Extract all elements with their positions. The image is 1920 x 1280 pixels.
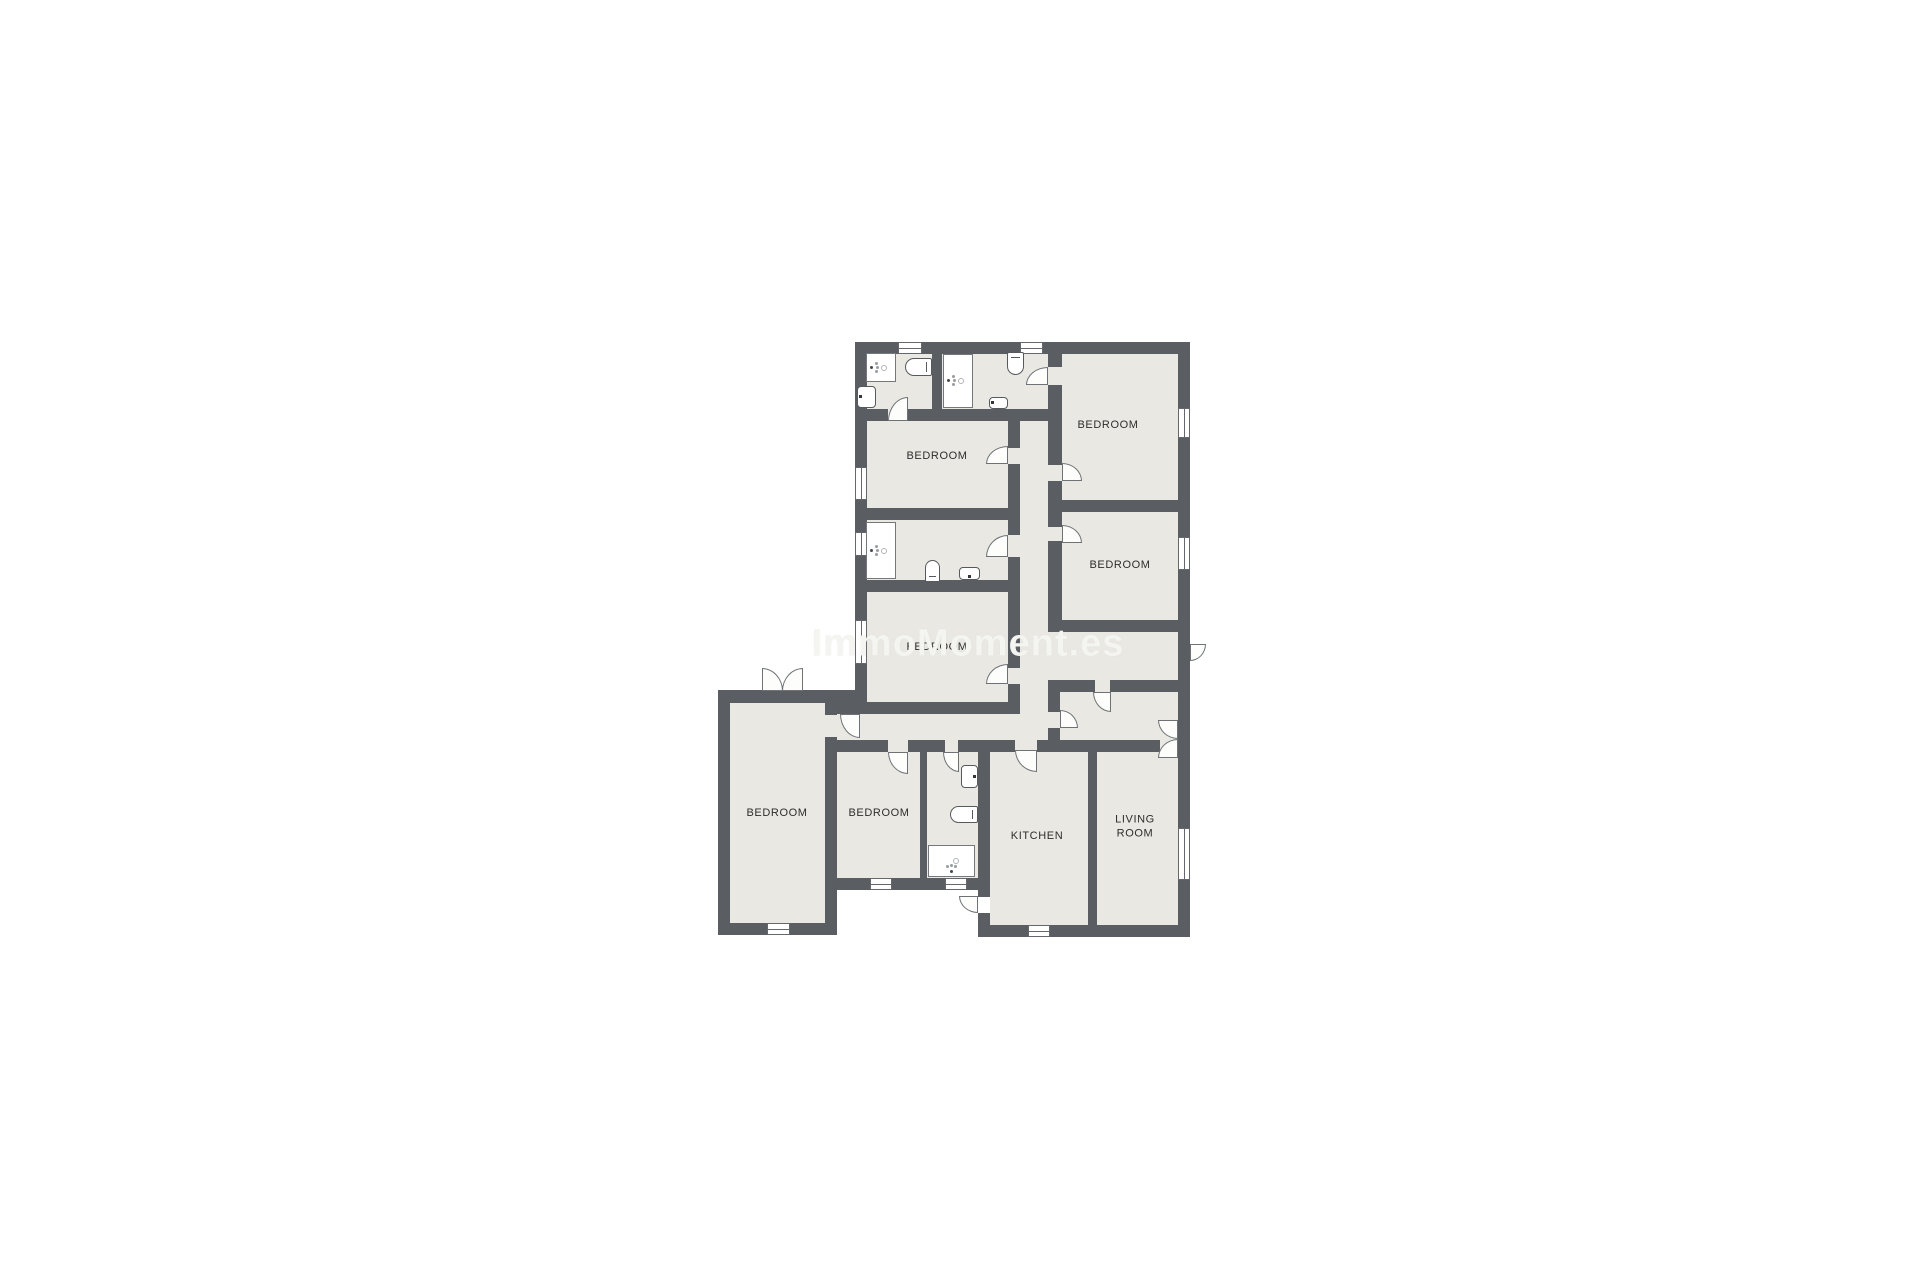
- wall: [978, 925, 1190, 937]
- wall: [837, 740, 888, 752]
- shower-head-icon: [947, 379, 950, 382]
- wall: [1008, 464, 1020, 535]
- door-gap: [1048, 367, 1062, 385]
- room-label: BEDROOM: [1077, 418, 1138, 432]
- french-door-west-right: [782, 668, 803, 691]
- window: [1028, 925, 1050, 937]
- wall: [990, 740, 1015, 752]
- wall: [1062, 500, 1178, 512]
- sink: [959, 567, 980, 580]
- french-door-west-left: [762, 668, 783, 691]
- door-gap: [1008, 668, 1020, 684]
- room-label: BEDROOM: [848, 806, 909, 820]
- wall: [855, 508, 1020, 520]
- wall: [908, 740, 945, 752]
- wall: [978, 913, 990, 937]
- window: [898, 342, 922, 354]
- wall: [1088, 750, 1097, 925]
- room-label: BEDROOM: [746, 806, 807, 820]
- wall: [908, 409, 1062, 421]
- shower-head-icon: [870, 549, 873, 552]
- window: [945, 878, 967, 890]
- door-gap: [825, 715, 837, 737]
- window: [1178, 828, 1190, 880]
- wall: [1048, 353, 1062, 367]
- window: [1178, 537, 1190, 570]
- wall: [718, 690, 730, 935]
- wall: [1058, 680, 1095, 692]
- kitchen-exterior-door: [959, 896, 978, 913]
- sink: [857, 386, 876, 408]
- toilet: [1007, 352, 1024, 375]
- sink: [961, 765, 978, 788]
- floor-plan: ImmoMoment.es BEDROOMBEDROOMBEDROOMBEDRO…: [0, 0, 1920, 1280]
- toilet: [925, 560, 940, 582]
- wall: [825, 703, 837, 715]
- window: [870, 878, 892, 890]
- shower: [866, 353, 896, 382]
- room-label: BEDROOM: [906, 449, 967, 463]
- wall: [978, 740, 990, 897]
- toilet: [950, 806, 978, 823]
- watermark: ImmoMoment.es: [812, 623, 1125, 666]
- wall: [1048, 481, 1062, 527]
- door-gap: [1048, 527, 1062, 541]
- door-gap: [1008, 448, 1020, 464]
- exterior-east-door: [1190, 644, 1206, 661]
- room-label: KITCHEN: [1011, 829, 1063, 843]
- room-entry-hall: [1060, 692, 1178, 740]
- shower: [928, 845, 975, 877]
- window: [855, 467, 867, 500]
- wall: [837, 702, 1020, 714]
- wall: [825, 737, 837, 923]
- wall: [920, 752, 927, 878]
- door-gap: [888, 740, 908, 752]
- room-label: LIVING ROOM: [1115, 813, 1155, 842]
- shower: [943, 354, 973, 408]
- door-gap: [943, 740, 958, 752]
- page: ImmoMoment.es BEDROOMBEDROOMBEDROOMBEDRO…: [0, 0, 1920, 1280]
- shower-head-icon: [950, 870, 953, 873]
- window: [1178, 408, 1190, 438]
- window: [767, 923, 790, 935]
- door-gap: [1048, 712, 1060, 728]
- room-corridor-vertical: [1020, 421, 1048, 740]
- wall: [1110, 680, 1178, 692]
- wall: [932, 353, 942, 409]
- wall: [1048, 541, 1062, 620]
- door-gap: [1015, 740, 1037, 750]
- wall: [855, 409, 888, 421]
- toilet: [905, 358, 932, 376]
- door-gap: [1048, 465, 1062, 481]
- wall: [1048, 680, 1060, 712]
- door-gap: [1095, 680, 1110, 692]
- shower-head-icon: [870, 366, 873, 369]
- room-label: BEDROOM: [1089, 558, 1150, 572]
- room-hall-south: [837, 714, 1020, 740]
- wall: [1048, 728, 1060, 740]
- sink: [989, 397, 1008, 409]
- wall: [1008, 421, 1020, 448]
- wall: [1048, 385, 1062, 465]
- wall: [1097, 740, 1160, 752]
- room-bedroom-mid-left: [867, 421, 1008, 508]
- shower: [866, 522, 896, 579]
- door-gap: [1008, 535, 1020, 557]
